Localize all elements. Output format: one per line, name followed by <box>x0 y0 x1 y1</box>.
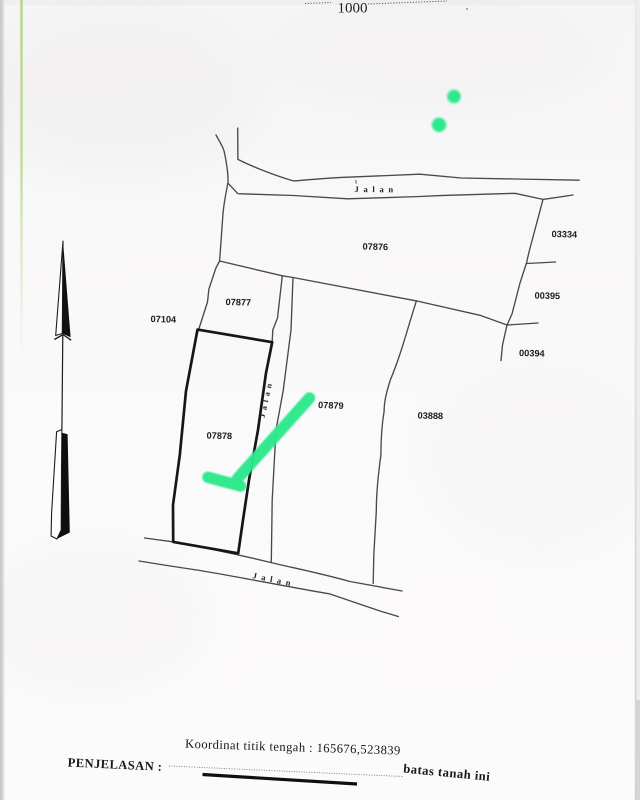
svg-text:00395: 00395 <box>534 291 560 302</box>
svg-text:00394: 00394 <box>519 348 546 359</box>
svg-text:07104: 07104 <box>150 314 177 325</box>
svg-text:07878: 07878 <box>206 431 232 442</box>
svg-text:1000: 1000 <box>338 1 368 17</box>
svg-text:03334: 03334 <box>551 229 578 240</box>
svg-text:Jalan: Jalan <box>354 184 397 194</box>
svg-text:07879: 07879 <box>318 400 344 411</box>
svg-text:03888: 03888 <box>417 411 443 422</box>
svg-text:07876: 07876 <box>362 242 388 253</box>
svg-text:07877: 07877 <box>225 297 251 308</box>
